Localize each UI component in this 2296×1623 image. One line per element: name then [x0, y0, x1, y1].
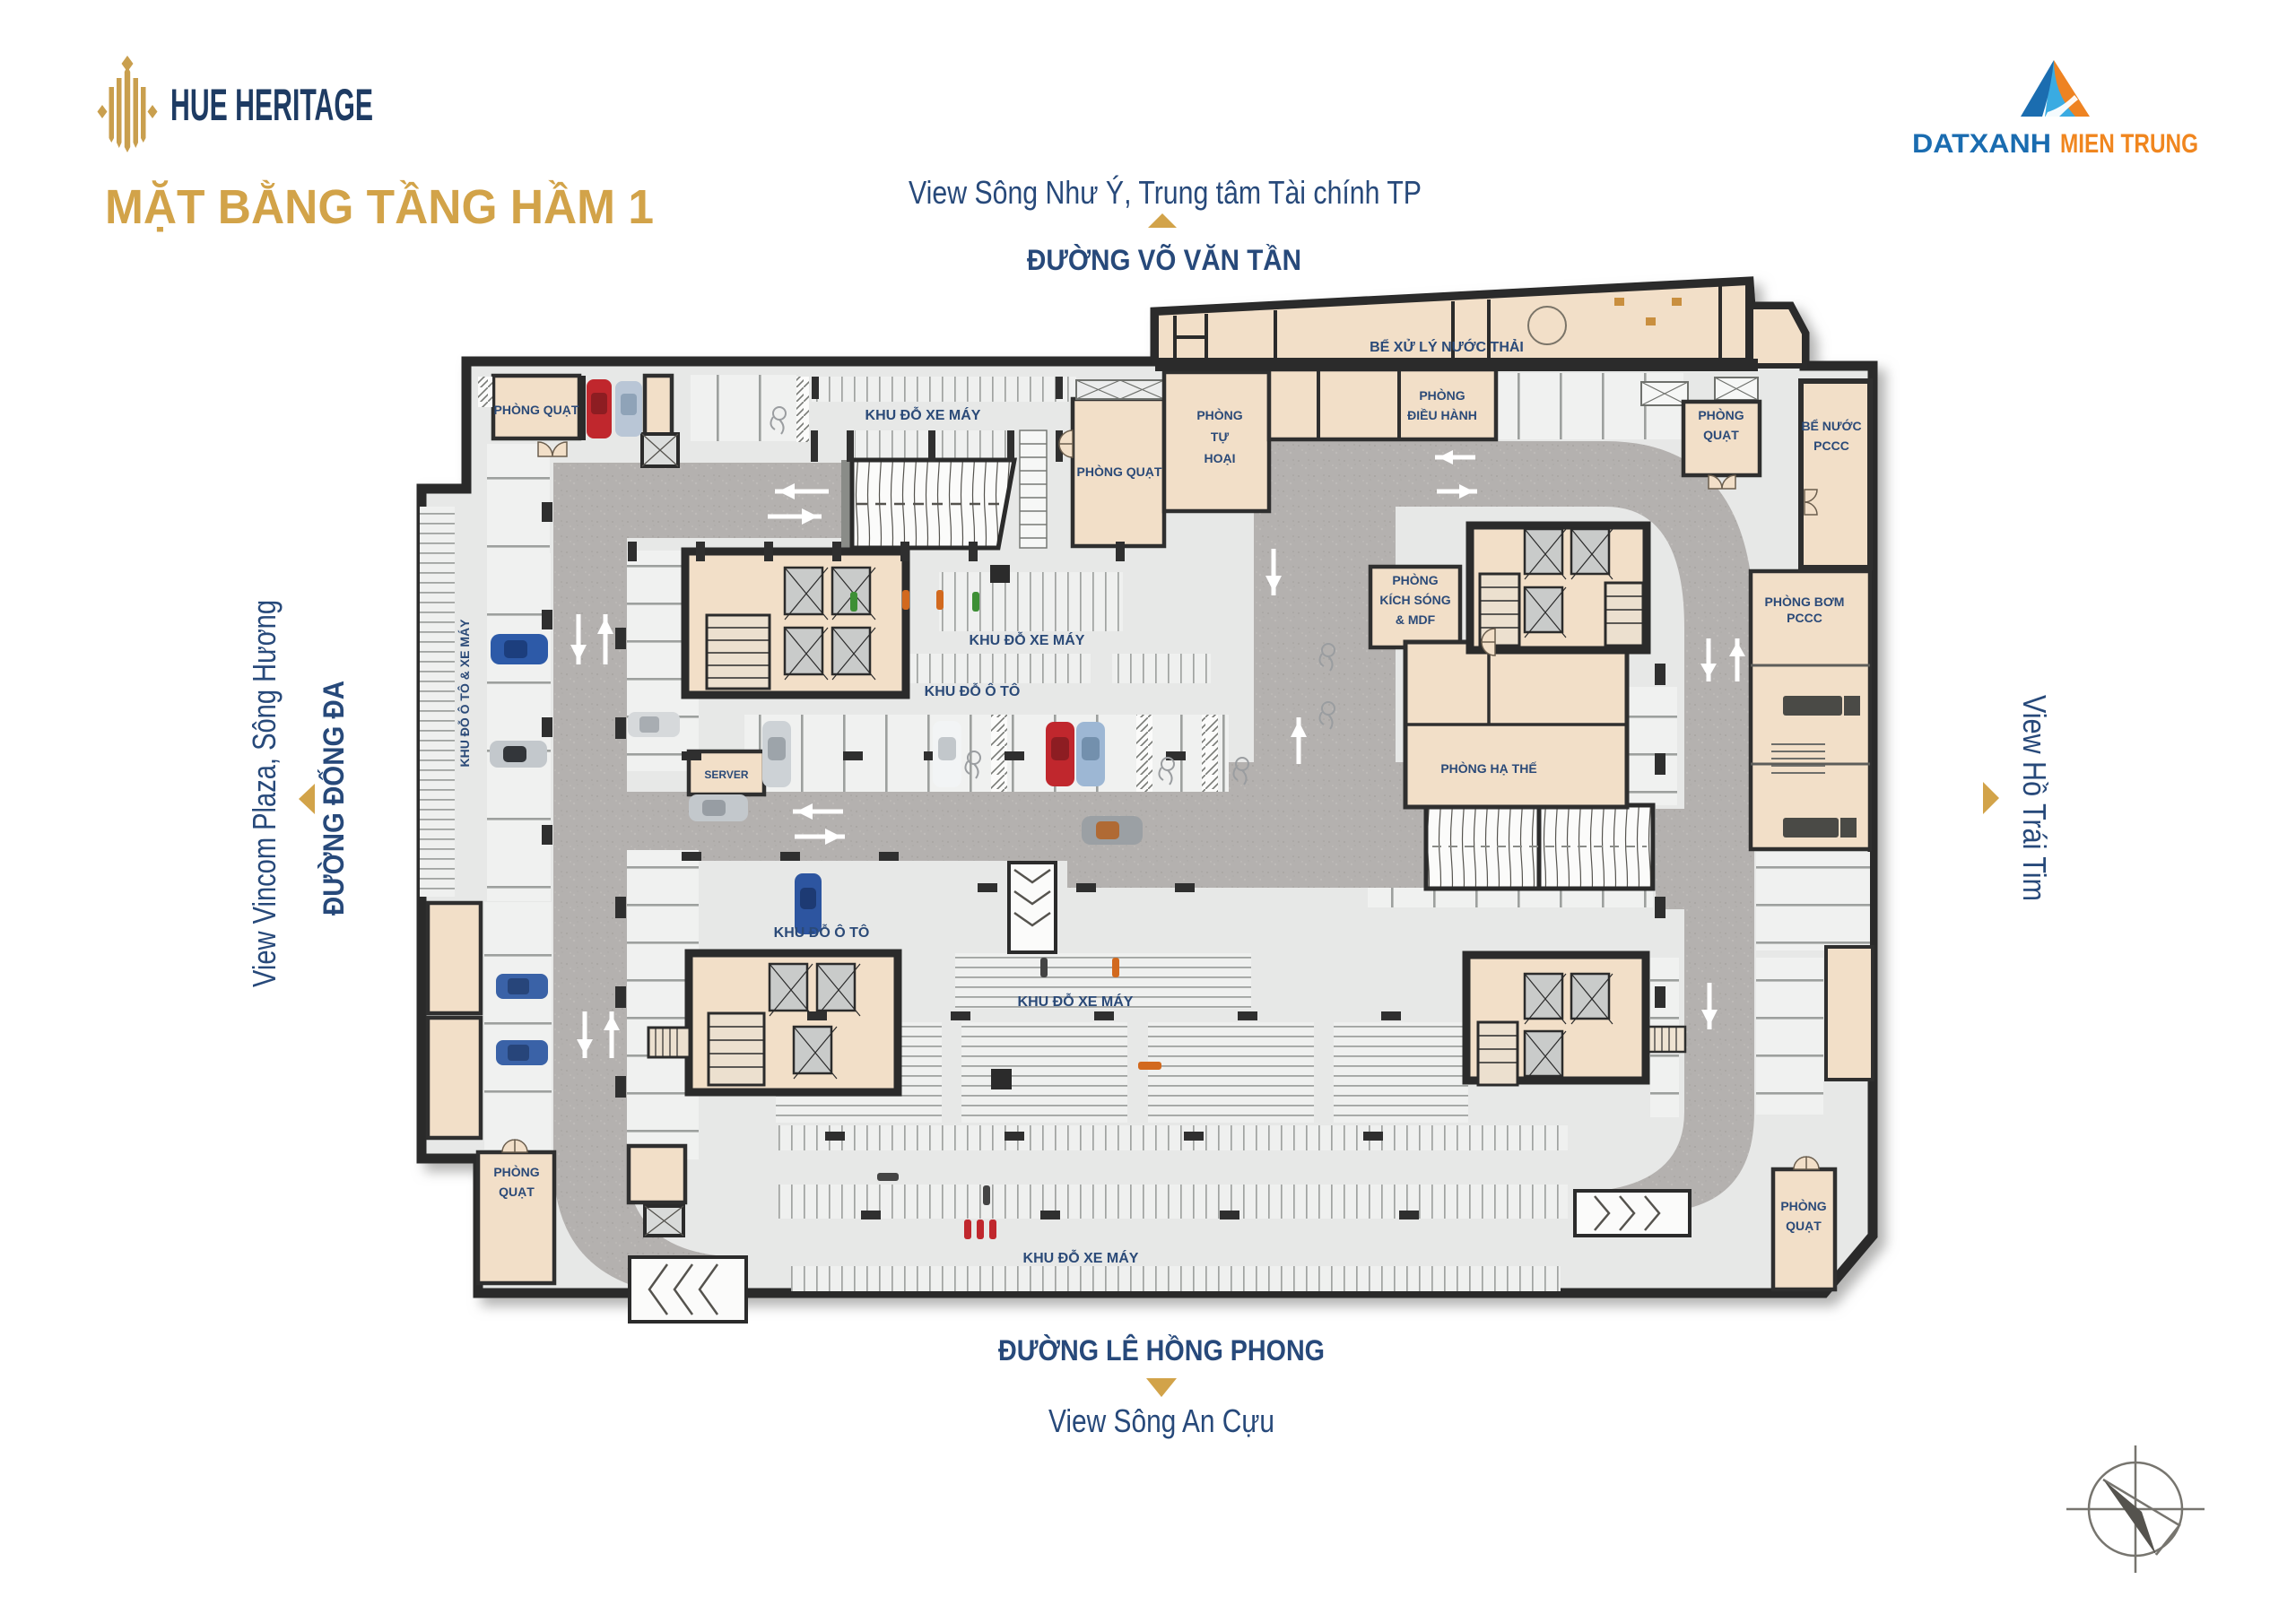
svg-text:ĐƯỜNG LÊ HỒNG PHONG: ĐƯỜNG LÊ HỒNG PHONG [998, 1334, 1325, 1367]
svg-text:MIEN TRUNG: MIEN TRUNG [2060, 129, 2198, 159]
svg-text:QUẠT: QUẠT [499, 1185, 535, 1199]
svg-text:ĐƯỜNG ĐỐNG ĐA: ĐƯỜNG ĐỐNG ĐA [317, 681, 350, 916]
svg-text:TỰ: TỰ [1211, 430, 1230, 444]
svg-text:PCCC: PCCC [1813, 438, 1849, 453]
svg-text:PCCC: PCCC [1787, 611, 1822, 625]
svg-text:KHU ĐỖ Ô TÔ & XE MÁY: KHU ĐỖ Ô TÔ & XE MÁY [457, 619, 472, 768]
svg-text:& MDF: & MDF [1396, 612, 1436, 627]
svg-text:HOẠI: HOẠI [1205, 451, 1236, 465]
svg-text:QUẠT: QUẠT [1786, 1219, 1822, 1233]
svg-text:KHU ĐỖ Ô TÔ: KHU ĐỖ Ô TÔ [774, 924, 870, 941]
svg-text:PHÒNG: PHÒNG [1419, 387, 1465, 403]
svg-text:PHÒNG: PHÒNG [1698, 407, 1744, 422]
svg-text:MẶT BẰNG TẦNG HẦM 1: MẶT BẰNG TẦNG HẦM 1 [105, 180, 654, 234]
svg-text:KÍCH SÓNG: KÍCH SÓNG [1379, 592, 1450, 607]
svg-text:HUE HERITAGE: HUE HERITAGE [170, 80, 373, 130]
svg-text:DATXANH: DATXANH [1912, 129, 2051, 159]
svg-text:View Hồ Trái Tim: View Hồ Trái Tim [2016, 695, 2053, 901]
svg-text:KHU ĐỖ XE MÁY: KHU ĐỖ XE MÁY [970, 631, 1085, 648]
svg-text:PHÒNG BƠM: PHÒNG BƠM [1765, 594, 1845, 609]
svg-text:KHU ĐỖ Ô TÔ: KHU ĐỖ Ô TÔ [925, 682, 1021, 699]
svg-text:KHU ĐỖ XE MÁY: KHU ĐỖ XE MÁY [865, 406, 981, 423]
svg-text:View Vincom Plaza, Sông Hương: View Vincom Plaza, Sông Hương [246, 600, 283, 987]
svg-text:BỂ XỬ LÝ NƯỚC THẢI: BỂ XỬ LÝ NƯỚC THẢI [1370, 338, 1524, 355]
svg-text:PHÒNG QUẠT: PHÒNG QUẠT [1077, 464, 1162, 479]
svg-text:BỂ NƯỚC: BỂ NƯỚC [1801, 418, 1861, 433]
svg-text:PHÒNG: PHÒNG [1196, 407, 1242, 422]
svg-text:PHÒNG: PHÒNG [1392, 572, 1438, 587]
svg-text:PHÒNG: PHÒNG [1780, 1198, 1826, 1213]
svg-text:KHU ĐỖ XE MÁY: KHU ĐỖ XE MÁY [1018, 993, 1134, 1010]
svg-text:PHÒNG QUẠT: PHÒNG QUẠT [494, 402, 579, 417]
svg-text:View Sông Như Ý, Trung tâm Tài: View Sông Như Ý, Trung tâm Tài chính TP [909, 174, 1422, 211]
svg-text:SERVER: SERVER [704, 768, 748, 781]
svg-text:ĐƯỜNG VÕ VĂN TẦN: ĐƯỜNG VÕ VĂN TẦN [1027, 244, 1301, 276]
svg-text:ĐIỀU HÀNH: ĐIỀU HÀNH [1407, 408, 1477, 422]
svg-text:View Sông An Cựu: View Sông An Cựu [1048, 1402, 1274, 1439]
svg-text:PHÒNG: PHÒNG [493, 1164, 539, 1179]
svg-text:KHU ĐỖ XE MÁY: KHU ĐỖ XE MÁY [1023, 1249, 1139, 1266]
svg-text:PHÒNG HẠ THẾ: PHÒNG HẠ THẾ [1440, 760, 1536, 776]
svg-text:QUẠT: QUẠT [1703, 428, 1739, 442]
